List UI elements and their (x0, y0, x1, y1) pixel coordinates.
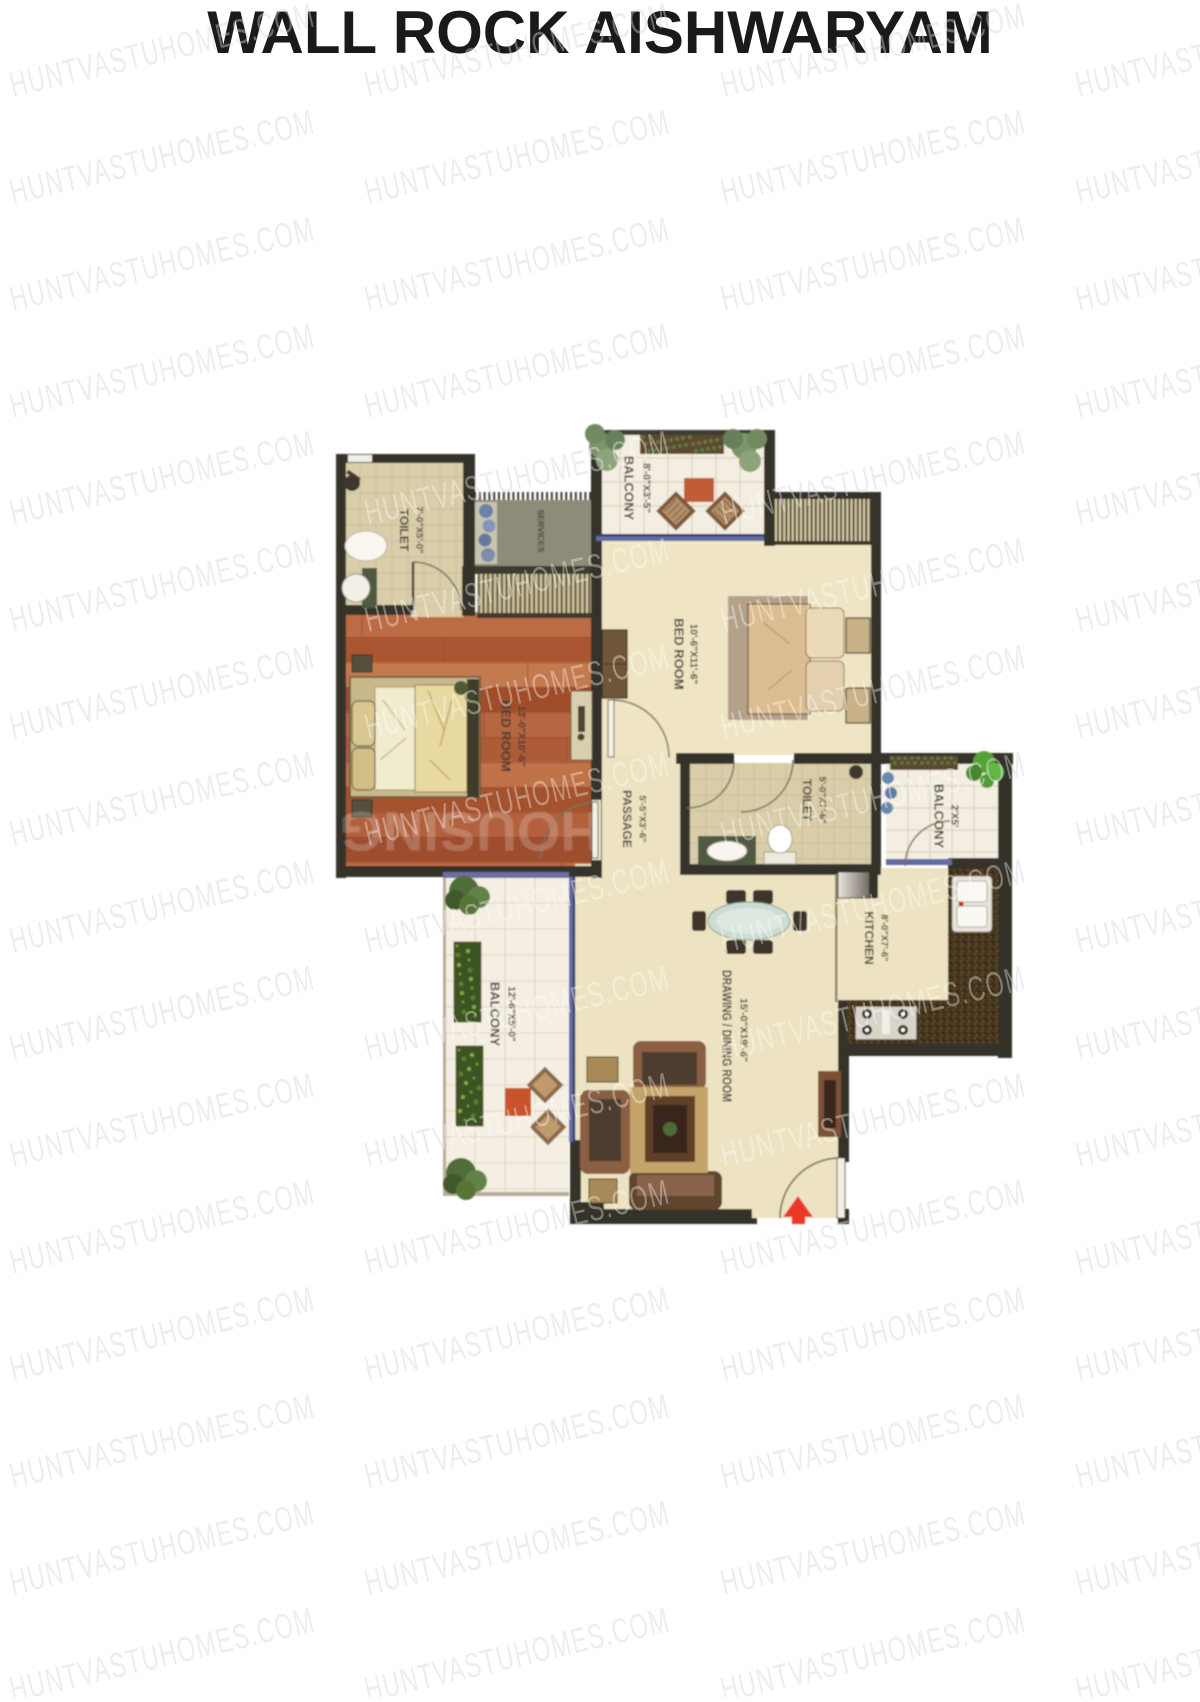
svg-text:PASSAGE: PASSAGE (620, 790, 634, 848)
svg-text:2'X5': 2'X5' (948, 805, 959, 828)
svg-text:SERVICES: SERVICES (536, 510, 546, 553)
svg-text:BED ROOM: BED ROOM (672, 618, 687, 690)
svg-text:5'-5"X3'-6": 5'-5"X3'-6" (636, 795, 647, 842)
svg-text:8'-0"X3'-5": 8'-0"X3'-5" (640, 463, 651, 513)
svg-text:13'-0"X10'-6": 13'-0"X10'-6" (515, 706, 526, 767)
svg-text:10'-6"X11'-6": 10'-6"X11'-6" (687, 624, 698, 685)
